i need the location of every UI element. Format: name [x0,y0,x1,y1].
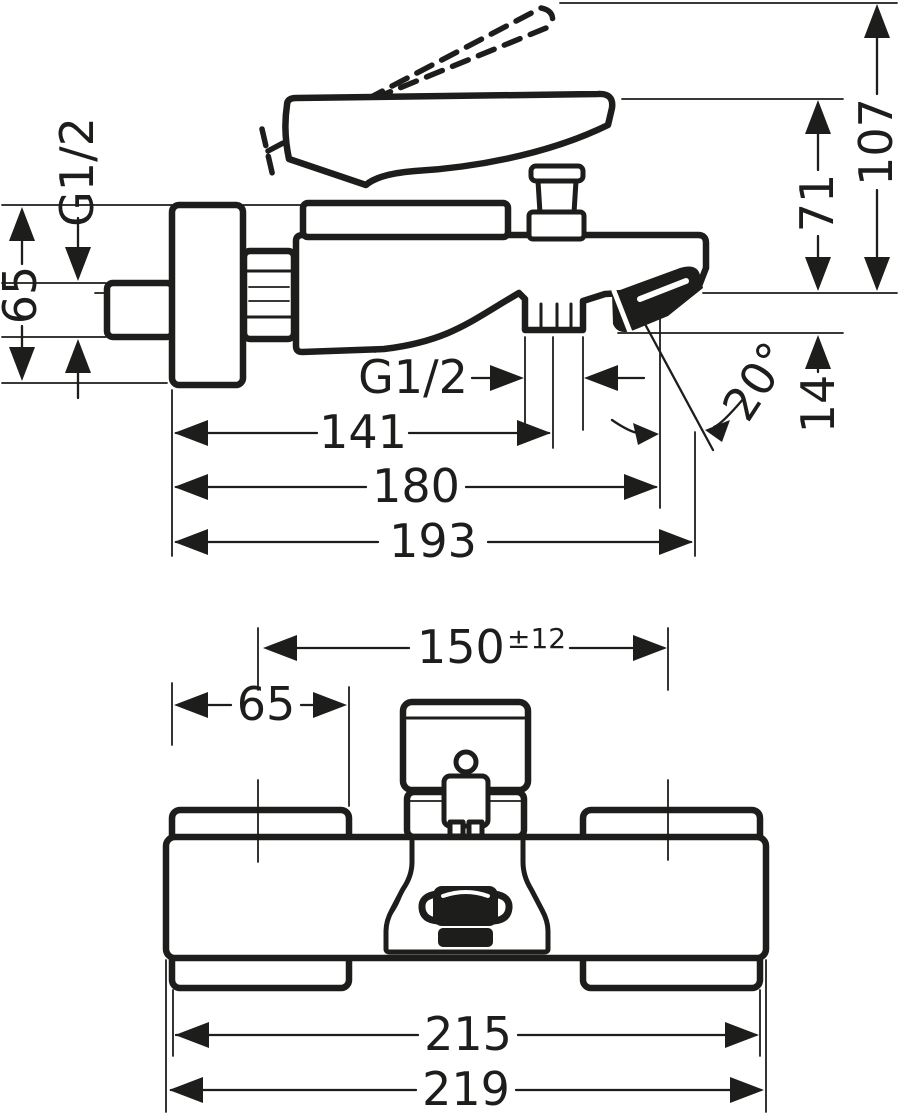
dimension-215-label: 215 [424,1007,512,1061]
dimension-215: 215 [175,1007,759,1061]
dimension-71-label: 71 [790,174,844,233]
outlet-thread-label: G1/2 [358,350,468,404]
dimension-141-label: 141 [319,405,407,459]
wall-connection-pipe [107,283,173,337]
side-view: G1/2 65 G1/2 141 180 [0,3,900,568]
dimension-219: 219 [169,1062,764,1113]
dimension-219-label: 219 [422,1062,510,1113]
angle-20: 20° [612,332,801,445]
bath-mixer-dimension-drawing: G1/2 65 G1/2 141 180 [0,0,900,1113]
technical-drawing-page: G1/2 65 G1/2 141 180 [0,0,900,1113]
dimension-107-label: 107 [849,98,900,186]
dimension-wall-thread: G1/2 [50,117,104,398]
dimension-193: 193 [174,514,693,568]
handle-front [403,702,528,837]
dimension-outlet-thread: G1/2 [358,350,644,404]
dimension-193-label: 193 [389,514,477,568]
cartridge-housing [303,203,508,237]
dimension-71: 71 [790,100,844,291]
dimension-107: 107 [849,4,900,291]
dimension-65-front-label: 65 [237,677,296,731]
spray-angle-line [632,300,713,450]
wall-escutcheon-side [172,205,243,385]
dimension-180: 180 [174,459,658,513]
dimension-65-side: 65 [0,207,47,381]
dimension-150-tolerance: ±12 [507,622,566,655]
wall-thread-label: G1/2 [50,117,104,227]
dimension-14-label: 14 [791,375,845,434]
dimension-180-label: 180 [372,459,460,513]
dimension-141: 141 [174,405,551,459]
union-nut [244,251,294,339]
diverter-stub [529,166,584,239]
dimension-65-front: 65 [174,677,347,731]
dimension-150: 150 ±12 [263,620,667,674]
dimension-65-side-label: 65 [0,266,47,325]
angle-20-label: 20° [712,332,802,430]
dimension-14: 14 [791,335,845,433]
dimension-150-label: 150 [417,620,505,674]
front-view: 150 ±12 65 215 219 [166,620,766,1113]
